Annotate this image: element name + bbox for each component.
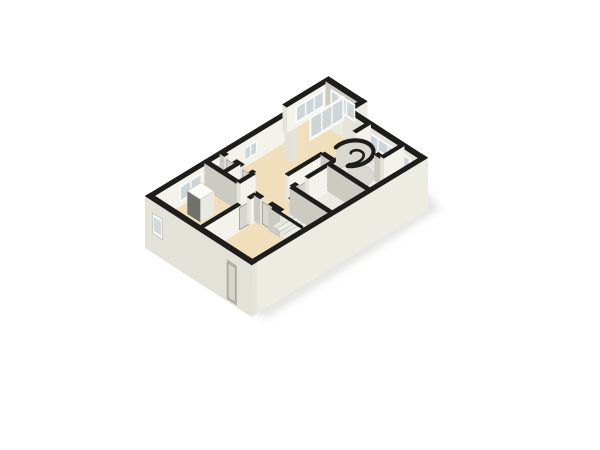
floorplan-canvas: [0, 0, 600, 450]
wardrobe: [187, 183, 214, 223]
front-door: [227, 259, 237, 306]
floorplan-3d-view: [0, 0, 600, 450]
